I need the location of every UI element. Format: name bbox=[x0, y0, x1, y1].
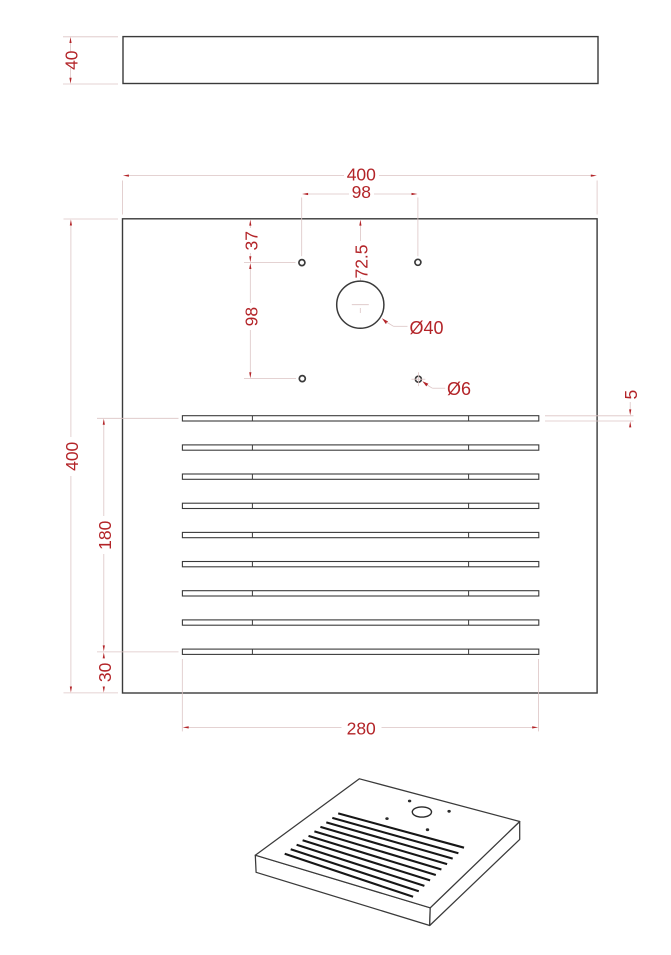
svg-text:72.5: 72.5 bbox=[352, 244, 372, 278]
svg-text:5: 5 bbox=[621, 390, 641, 400]
svg-text:98: 98 bbox=[352, 182, 371, 202]
svg-text:180: 180 bbox=[95, 520, 115, 549]
svg-text:Ø40: Ø40 bbox=[410, 318, 444, 338]
svg-text:98: 98 bbox=[241, 307, 261, 326]
svg-text:Ø6: Ø6 bbox=[447, 379, 471, 399]
svg-text:30: 30 bbox=[95, 662, 115, 682]
svg-text:280: 280 bbox=[347, 719, 376, 739]
svg-text:37: 37 bbox=[241, 231, 261, 250]
svg-text:40: 40 bbox=[62, 50, 82, 70]
svg-text:400: 400 bbox=[62, 441, 82, 470]
